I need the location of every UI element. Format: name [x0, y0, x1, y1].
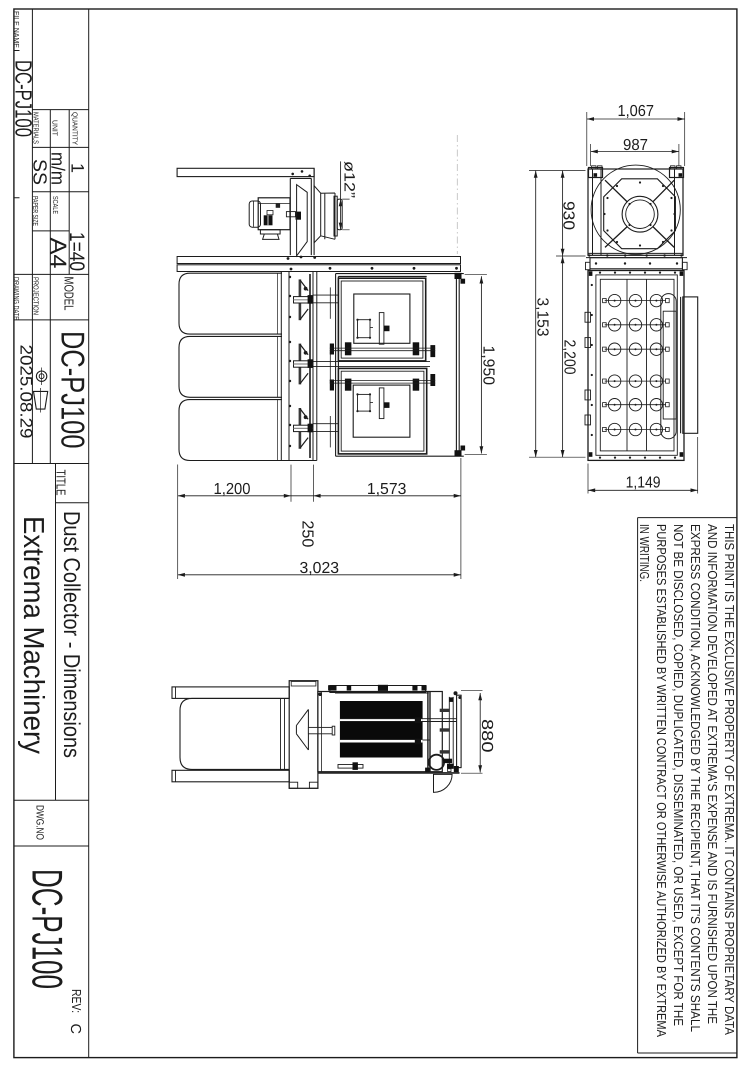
svg-text:QUANTITY: QUANTITY [70, 112, 79, 145]
svg-text:REV:: REV: [69, 989, 84, 1013]
svg-text:SCALE: SCALE [51, 196, 60, 214]
svg-text:PAPER SIZE: PAPER SIZE [31, 196, 40, 226]
svg-text:A4: A4 [46, 238, 72, 269]
svg-text:THIS PRINT IS THE EXCLUSIVE PR: THIS PRINT IS THE EXCLUSIVE PROPERTY OF … [722, 524, 737, 1035]
svg-text:DC-PJ100: DC-PJ100 [22, 869, 70, 989]
svg-text:AND INFORMATION DEVELOPED AT E: AND INFORMATION DEVELOPED AT EXTREMA'S E… [705, 524, 720, 1024]
svg-text:2,200: 2,200 [561, 340, 578, 375]
svg-text:1,573: 1,573 [367, 481, 407, 498]
svg-text:TITLE: TITLE [54, 470, 69, 496]
svg-text:1,950: 1,950 [479, 346, 496, 386]
svg-text:1,149: 1,149 [626, 474, 661, 491]
svg-text:NOT BE DISCLOSED, COPIED, DUPL: NOT BE DISCLOSED, COPIED, DUPLICATED, DI… [671, 524, 686, 1026]
svg-text:1,067: 1,067 [618, 103, 655, 120]
svg-text:EXPRESS CONDITION, ACKNOWLEDGE: EXPRESS CONDITION, ACKNOWLEDGED BY THE R… [688, 524, 703, 1032]
svg-text:PROJECTION: PROJECTION [31, 277, 40, 315]
svg-text:1: 1 [68, 163, 88, 173]
svg-text:250: 250 [299, 520, 316, 547]
svg-text:PURPOSES ESTABLISHED BY WRITTE: PURPOSES ESTABLISHED BY WRITTEN CONTRACT… [654, 524, 669, 1037]
svg-text:ø12”: ø12” [341, 161, 358, 198]
svg-text:1,200: 1,200 [214, 481, 251, 498]
svg-text:930: 930 [560, 201, 577, 230]
svg-text:FILE NAME: FILE NAME [12, 11, 21, 48]
svg-text:2025.08.29: 2025.08.29 [16, 345, 35, 439]
svg-text:MATERIALS: MATERIALS [32, 112, 41, 144]
svg-text:Extrema Machinery: Extrema Machinery [17, 516, 49, 754]
svg-text:SS: SS [29, 159, 50, 185]
svg-text:MODEL: MODEL [62, 277, 77, 311]
svg-text:Dust Collector - Dimensions: Dust Collector - Dimensions [59, 511, 85, 758]
svg-text:UNIT: UNIT [51, 120, 60, 137]
svg-text:DWG.NO: DWG.NO [34, 805, 46, 840]
svg-text:IN WRITING.: IN WRITING. [637, 524, 652, 582]
svg-text:C: C [67, 1024, 83, 1034]
svg-text:DC-PJ100: DC-PJ100 [55, 331, 92, 449]
svg-text:DRAWING DATE: DRAWING DATE [12, 277, 21, 320]
